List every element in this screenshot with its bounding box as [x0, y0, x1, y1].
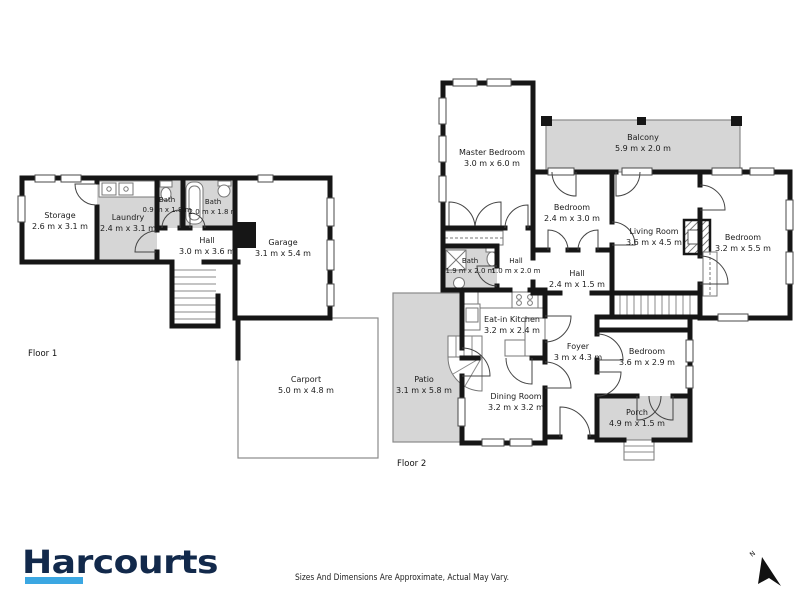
room-dims-patio: 3.1 m x 5.8 m — [396, 386, 452, 395]
window-icon — [686, 340, 693, 362]
wardrobe — [445, 202, 503, 245]
window-icon — [35, 175, 55, 182]
room-dims-balcony: 5.9 m x 2.0 m — [615, 144, 671, 153]
room-dims-bath2: 1.9 m x 2.0 m — [446, 267, 495, 275]
room-name-living-room: Living Room — [629, 227, 678, 236]
window-icon — [327, 240, 334, 270]
floor2-stairs — [620, 294, 690, 316]
room-name-kitchen: Eat-in Kitchen — [484, 315, 540, 324]
room-name-storage: Storage — [44, 211, 75, 220]
laundry-appliances — [99, 181, 155, 197]
door-arc — [616, 172, 640, 196]
window-icon — [487, 79, 511, 86]
room-dims-master-bedroom: 3.0 m x 6.0 m — [464, 159, 520, 168]
room-name-carport: Carport — [291, 375, 321, 384]
door-arc — [560, 407, 590, 437]
window-icon — [327, 284, 334, 306]
window-icon — [439, 176, 446, 202]
window-icon — [18, 196, 25, 222]
door-arc — [505, 205, 528, 228]
floorplan-canvas: Storage 2.6 m x 3.1 m Laundry 2.4 m x 3.… — [0, 0, 800, 600]
room-dims-bath-small: 0.9 m x 1.8 m — [143, 206, 192, 214]
window-icon — [712, 168, 742, 175]
window-icon — [786, 252, 793, 284]
room-dims-porch: 4.9 m x 1.5 m — [609, 419, 665, 428]
room-dims-living-room: 3.6 m x 4.5 m — [626, 238, 682, 247]
door-arc — [552, 172, 576, 196]
room-name-bath: Bath — [205, 198, 221, 206]
room-dims-bedroom-2: 3.2 m x 5.5 m — [715, 244, 771, 253]
room-dims-bedroom-3: 3.6 m x 2.9 m — [619, 358, 675, 367]
north-arrow-icon: N — [748, 549, 781, 586]
window-icon — [453, 79, 477, 86]
room-dims-garage: 3.1 m x 5.4 m — [255, 249, 311, 258]
room-name-bedroom-3: Bedroom — [629, 347, 665, 356]
closet — [703, 252, 717, 296]
room-dims-hall-small: 1.0 m x 2.0 m — [492, 267, 541, 275]
room-name-hall: Hall — [199, 236, 214, 245]
window-icon — [718, 314, 748, 321]
room-name-porch: Porch — [626, 408, 648, 417]
door-arc — [545, 316, 571, 342]
room-name-bedroom-2: Bedroom — [725, 233, 761, 242]
room-dims-storage: 2.6 m x 3.1 m — [32, 222, 88, 231]
room-name-master-bedroom: Master Bedroom — [459, 148, 525, 157]
window-icon — [458, 398, 465, 426]
window-icon — [61, 175, 81, 182]
porch-fill — [597, 396, 690, 440]
door-arc — [548, 230, 568, 250]
room-name-hall2: Hall — [569, 269, 584, 278]
window-icon — [750, 168, 774, 175]
window-icon — [327, 198, 334, 226]
window-icon — [439, 136, 446, 162]
logo-underline — [25, 577, 83, 584]
floor1-plan: Storage 2.6 m x 3.1 m Laundry 2.4 m x 3.… — [18, 175, 378, 458]
room-dims-hall2: 2.4 m x 1.5 m — [549, 280, 605, 289]
harcourts-logo: Harcourts — [22, 543, 218, 581]
room-name-patio: Patio — [414, 375, 434, 384]
porch-steps — [624, 440, 654, 460]
window-icon — [510, 439, 532, 446]
room-name-bath-small: Bath — [159, 196, 175, 204]
door-arc — [700, 185, 725, 210]
door-arc — [75, 184, 96, 205]
disclaimer-text: Sizes And Dimensions Are Approximate, Ac… — [295, 573, 509, 583]
floor1-label: Floor 1 — [28, 349, 57, 359]
room-name-bath2: Bath — [462, 257, 478, 265]
window-icon — [482, 439, 504, 446]
window-icon — [686, 366, 693, 388]
footer: Harcourts Sizes And Dimensions Are Appro… — [22, 543, 781, 586]
window-icon — [786, 200, 793, 230]
door-arc — [597, 372, 621, 396]
room-name-laundry: Laundry — [112, 213, 145, 222]
room-dims-bedroom-1: 2.4 m x 3.0 m — [544, 214, 600, 223]
sink-icon — [218, 181, 231, 197]
room-dims-dining-room: 3.2 m x 3.2 m — [488, 403, 544, 412]
room-dims-kitchen: 3.2 m x 2.4 m — [484, 326, 540, 335]
room-name-dining-room: Dining Room — [490, 392, 541, 401]
window-icon — [258, 175, 273, 182]
door-arc — [578, 230, 598, 250]
room-name-foyer: Foyer — [567, 342, 590, 351]
room-dims-carport: 5.0 m x 4.8 m — [278, 386, 334, 395]
room-name-balcony: Balcony — [627, 133, 659, 142]
room-dims-foyer: 3 m x 4.3 m — [554, 353, 603, 362]
fireplace-icon — [684, 220, 710, 254]
room-name-garage: Garage — [268, 238, 297, 247]
north-label: N — [748, 549, 757, 558]
sink-icon — [454, 278, 465, 289]
floor2-label: Floor 2 — [397, 459, 426, 469]
window-icon — [622, 168, 652, 175]
room-name-hall-small: Hall — [509, 257, 522, 265]
room-name-bedroom-1: Bedroom — [554, 203, 590, 212]
floor1-stairs — [174, 270, 216, 319]
room-dims-hall: 3.0 m x 3.6 m — [179, 247, 235, 256]
door-arc — [545, 362, 571, 388]
chimney-block — [236, 222, 256, 248]
window-icon — [439, 98, 446, 124]
floor2-plan: Master Bedroom 3.0 m x 6.0 m Balcony 5.9… — [393, 79, 793, 469]
room-dims-laundry: 2.4 m x 3.1 m — [100, 224, 156, 233]
door-arc — [506, 358, 532, 384]
room-dims-bath: 2.0 m x 1.8 m — [189, 208, 238, 216]
